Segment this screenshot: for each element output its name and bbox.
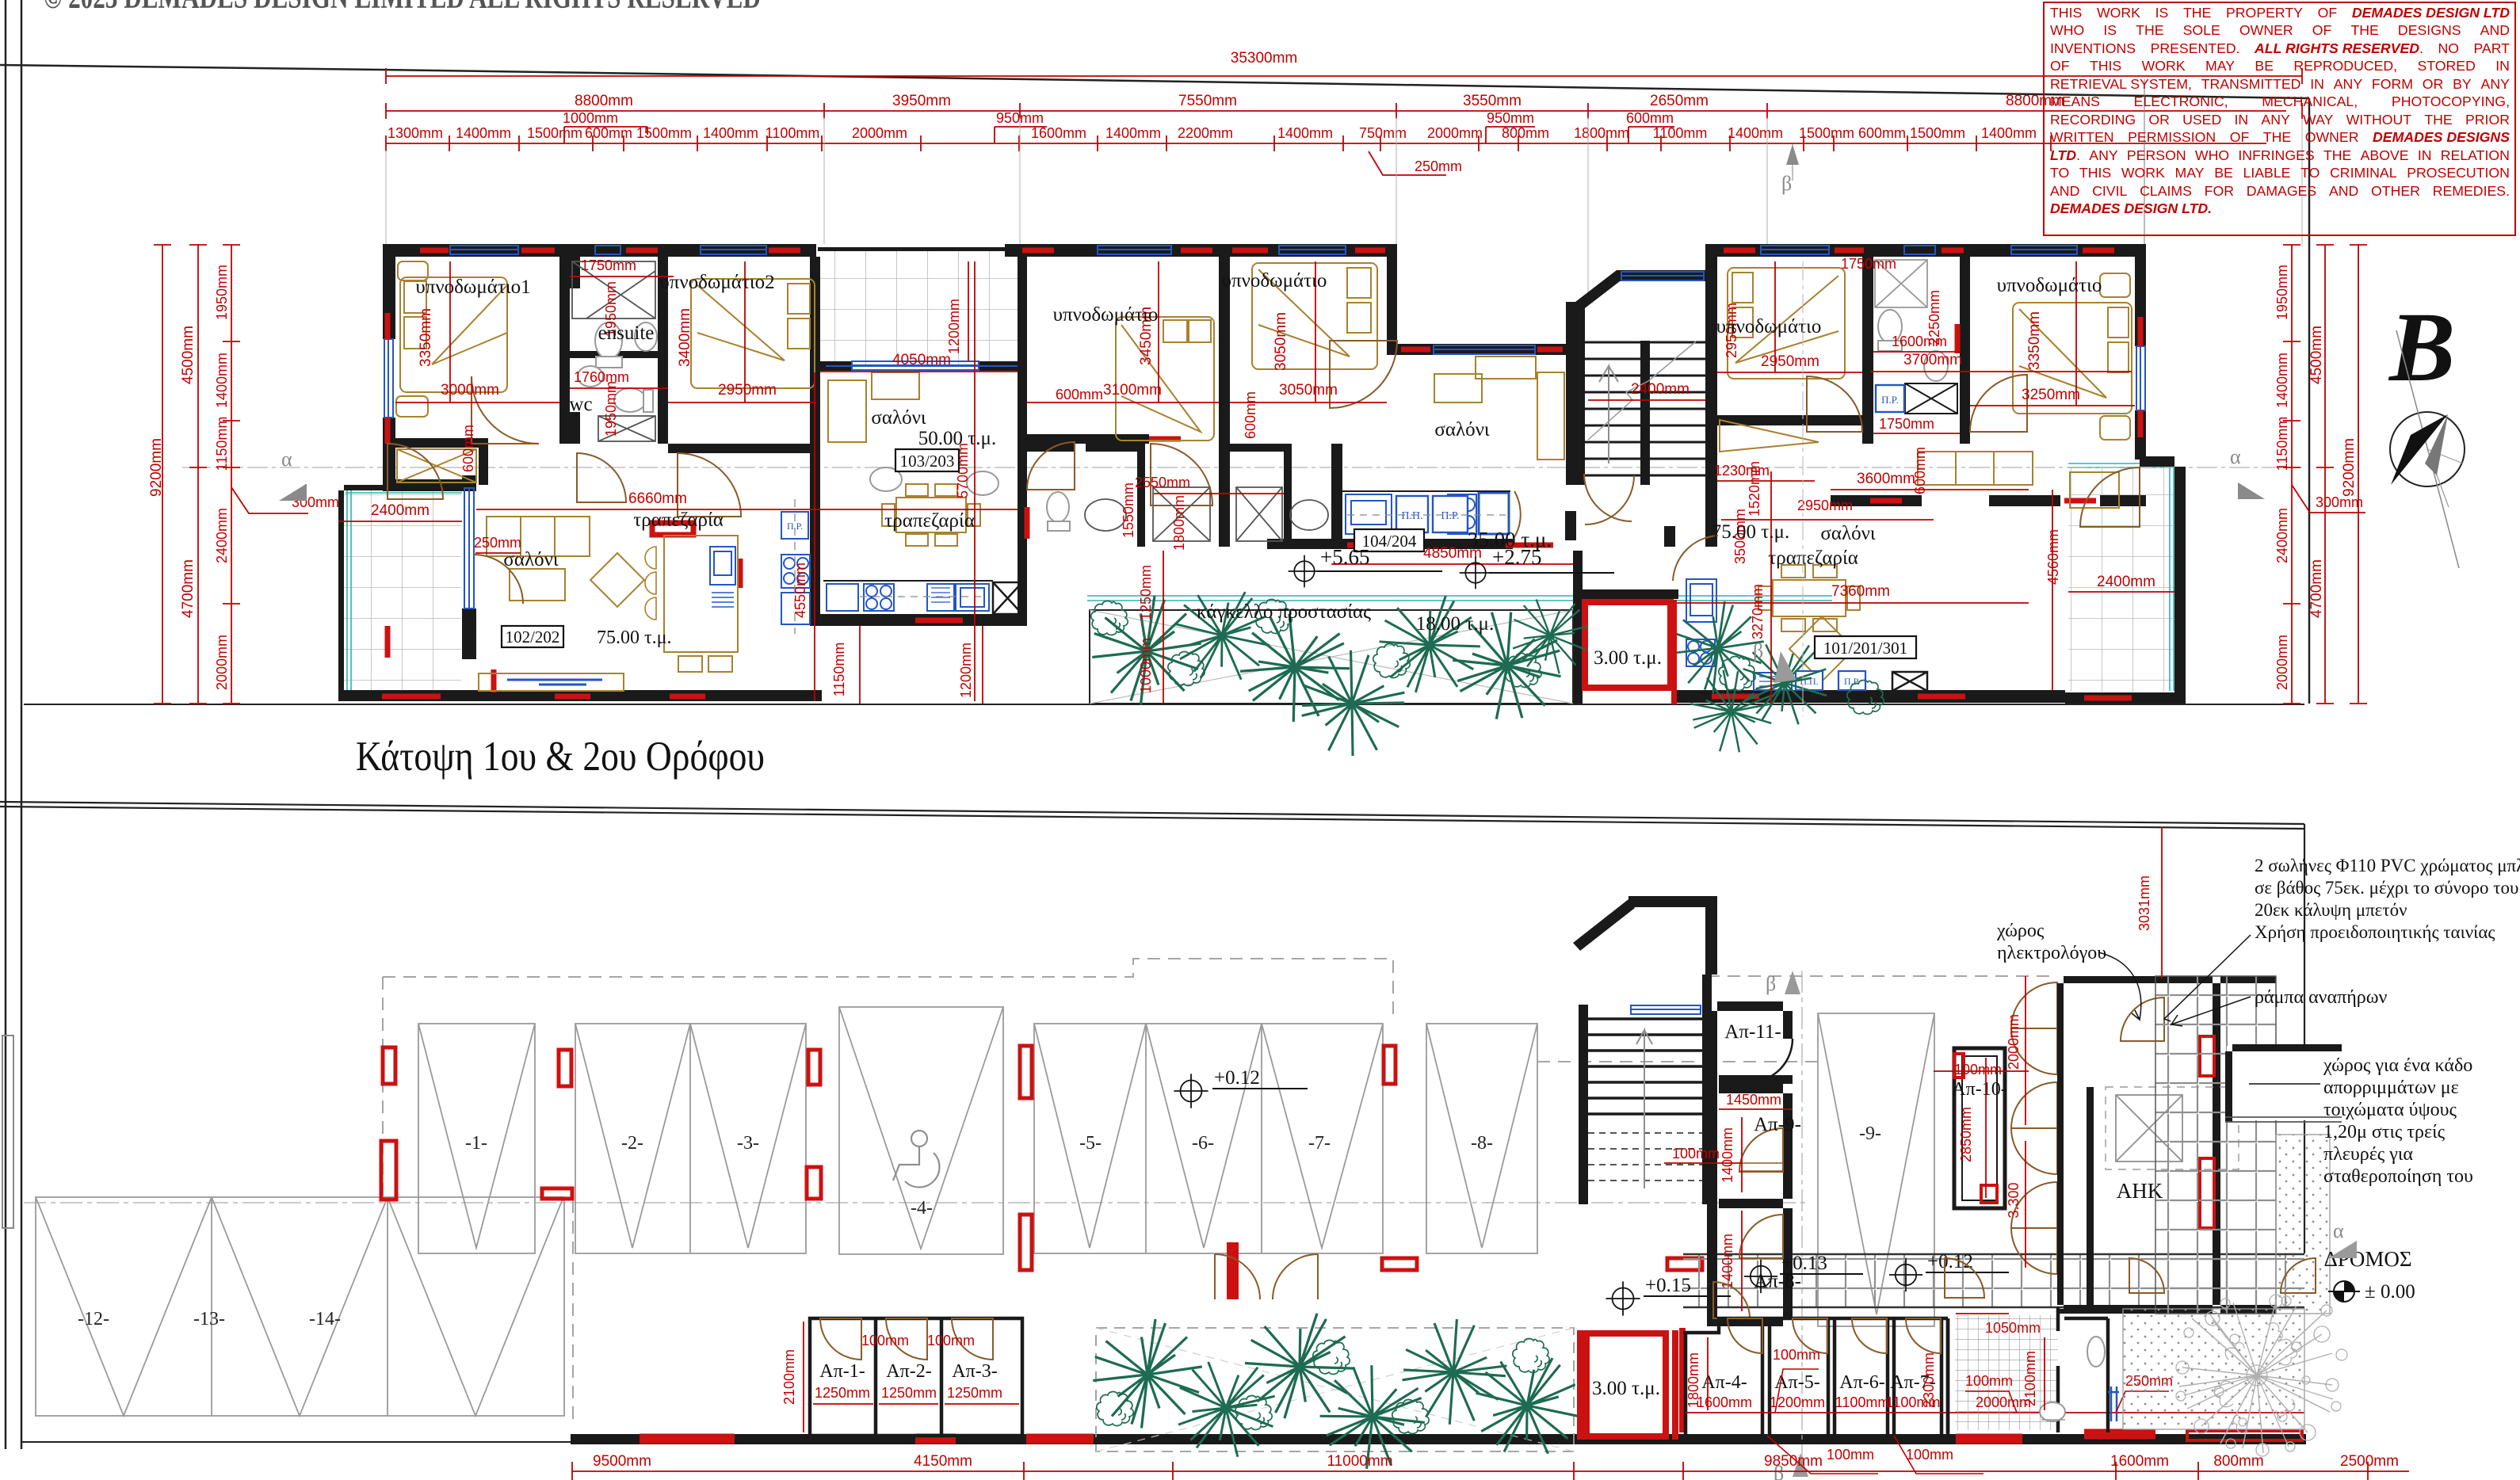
svg-text:1750mm: 1750mm bbox=[1841, 256, 1896, 272]
svg-text:600mm: 600mm bbox=[1056, 387, 1103, 402]
svg-text:100mm: 100mm bbox=[1906, 1447, 1953, 1463]
svg-text:-6-: -6- bbox=[1192, 1133, 1214, 1154]
svg-text:1200mm: 1200mm bbox=[958, 643, 974, 698]
svg-text:-1-: -1- bbox=[465, 1133, 487, 1154]
svg-text:1400mm: 1400mm bbox=[456, 125, 511, 141]
svg-text:3031mm: 3031mm bbox=[2136, 875, 2152, 931]
svg-text:100mm: 100mm bbox=[1954, 1062, 2002, 1078]
svg-text:2550mm: 2550mm bbox=[1135, 475, 1190, 490]
svg-text:3100mm: 3100mm bbox=[1103, 382, 1162, 399]
svg-text:2 σωλήνες Φ110 PVC χρώματος μπ: 2 σωλήνες Φ110 PVC χρώματος μπλέ bbox=[2255, 856, 2520, 875]
svg-text:1100mm: 1100mm bbox=[1835, 1394, 1890, 1410]
svg-text:2100mm: 2100mm bbox=[2022, 1351, 2038, 1406]
svg-text:600mm: 600mm bbox=[1243, 391, 1258, 439]
svg-text:1500mm: 1500mm bbox=[527, 125, 582, 141]
svg-text:ensuite: ensuite bbox=[598, 322, 655, 344]
svg-text:+0.12: +0.12 bbox=[1927, 1251, 1973, 1272]
svg-text:Απ-11-: Απ-11- bbox=[1724, 1021, 1781, 1043]
svg-text:1500mm: 1500mm bbox=[1910, 125, 1965, 141]
svg-text:Π.Π.: Π.Π. bbox=[1401, 510, 1422, 522]
svg-text:1100mm: 1100mm bbox=[766, 125, 820, 141]
svg-text:απορριμμάτων με: απορριμμάτων με bbox=[2323, 1078, 2459, 1098]
svg-text:υπνοδωμάτιο: υπνοδωμάτιο bbox=[1997, 275, 2102, 296]
svg-text:1400mm: 1400mm bbox=[2274, 353, 2290, 408]
svg-text:+0.12: +0.12 bbox=[1214, 1067, 1260, 1089]
svg-text:-2-: -2- bbox=[621, 1133, 643, 1154]
svg-text:Απ-9-: Απ-9- bbox=[1754, 1114, 1801, 1135]
svg-text:3350mm: 3350mm bbox=[418, 308, 434, 367]
svg-text:-4-: -4- bbox=[911, 1198, 933, 1219]
svg-text:α: α bbox=[2230, 445, 2241, 468]
svg-text:1400mm: 1400mm bbox=[1981, 125, 2037, 141]
svg-text:1950mm: 1950mm bbox=[603, 381, 619, 437]
svg-text:100mm: 100mm bbox=[1827, 1447, 1874, 1463]
svg-text:τραπεζαρία: τραπεζαρία bbox=[633, 509, 724, 531]
svg-text:1950mm: 1950mm bbox=[214, 265, 230, 320]
svg-text:1400mm: 1400mm bbox=[1720, 1234, 1735, 1289]
svg-text:1400mm: 1400mm bbox=[1720, 1127, 1735, 1183]
svg-text:9200mm: 9200mm bbox=[2341, 438, 2358, 497]
svg-text:Απ-3-: Απ-3- bbox=[952, 1361, 997, 1382]
svg-text:-14-: -14- bbox=[309, 1309, 341, 1329]
svg-text:2400mm: 2400mm bbox=[2274, 508, 2290, 563]
svg-text:Απ-6-: Απ-6- bbox=[1839, 1372, 1884, 1393]
svg-text:6660mm: 6660mm bbox=[628, 490, 687, 507]
svg-text:ηλεκτρολόγου: ηλεκτρολόγου bbox=[1997, 943, 2106, 963]
svg-text:+0.13: +0.13 bbox=[1781, 1253, 1827, 1274]
svg-text:-8-: -8- bbox=[1471, 1133, 1493, 1154]
svg-text:3600mm: 3600mm bbox=[1857, 471, 1915, 487]
svg-text:-3-: -3- bbox=[737, 1133, 759, 1154]
svg-text:2000mm: 2000mm bbox=[1427, 125, 1483, 141]
svg-text:103/203: 103/203 bbox=[900, 452, 955, 471]
svg-text:75.00 τ.μ.: 75.00 τ.μ. bbox=[597, 627, 672, 648]
svg-text:ράμπα αναπήρων: ράμπα αναπήρων bbox=[2255, 987, 2388, 1008]
svg-text:3000mm: 3000mm bbox=[441, 382, 499, 399]
svg-text:600mm: 600mm bbox=[460, 425, 476, 472]
svg-text:3050mm: 3050mm bbox=[1273, 312, 1289, 371]
svg-text:950mm: 950mm bbox=[1487, 110, 1534, 126]
svg-text:800mm: 800mm bbox=[1502, 125, 1549, 141]
svg-text:α: α bbox=[281, 448, 292, 471]
svg-text:3250mm: 3250mm bbox=[2022, 387, 2080, 403]
svg-text:100mm: 100mm bbox=[861, 1333, 909, 1348]
svg-text:2250mm: 2250mm bbox=[1926, 290, 1942, 345]
svg-text:wc: wc bbox=[569, 394, 592, 415]
svg-text:1400mm: 1400mm bbox=[1728, 125, 1783, 141]
svg-text:σαλόνι: σαλόνι bbox=[1434, 419, 1490, 441]
svg-text:1750mm: 1750mm bbox=[581, 257, 636, 273]
svg-text:100mm: 100mm bbox=[1672, 1146, 1720, 1161]
svg-text:1800mm: 1800mm bbox=[1171, 495, 1187, 551]
svg-text:9500mm: 9500mm bbox=[593, 1453, 651, 1470]
svg-text:σαλόνι: σαλόνι bbox=[503, 549, 559, 570]
svg-text:250mm: 250mm bbox=[474, 535, 521, 551]
svg-text:1250mm: 1250mm bbox=[1138, 565, 1154, 620]
svg-text:1600mm: 1600mm bbox=[1031, 125, 1086, 141]
svg-text:600mm: 600mm bbox=[1912, 447, 1928, 494]
svg-text:2000mm: 2000mm bbox=[852, 125, 907, 141]
svg-text:101/201/301: 101/201/301 bbox=[1823, 639, 1907, 658]
svg-text:1450mm: 1450mm bbox=[1726, 1092, 1781, 1108]
svg-text:600mm: 600mm bbox=[585, 125, 632, 141]
svg-text:2400mm: 2400mm bbox=[371, 502, 430, 519]
svg-text:-7-: -7- bbox=[1308, 1133, 1331, 1154]
svg-text:Π.Ρ.: Π.Ρ. bbox=[1881, 394, 1899, 406]
svg-text:+0.15: +0.15 bbox=[1645, 1275, 1691, 1296]
svg-text:τραπεζαρία: τραπεζαρία bbox=[884, 510, 975, 532]
svg-text:750mm: 750mm bbox=[1359, 125, 1407, 141]
svg-text:-13-: -13- bbox=[193, 1309, 225, 1329]
svg-text:1400mm: 1400mm bbox=[214, 353, 230, 408]
svg-text:2000mm: 2000mm bbox=[2274, 635, 2290, 690]
svg-text:9850mm: 9850mm bbox=[1764, 1453, 1823, 1470]
svg-text:2850mm: 2850mm bbox=[1958, 1107, 1974, 1162]
svg-text:3.00 τ.μ.: 3.00 τ.μ. bbox=[1592, 1378, 1660, 1399]
svg-text:600mm: 600mm bbox=[1626, 110, 1674, 126]
svg-text:2950mm: 2950mm bbox=[1761, 353, 1819, 370]
svg-text:3700mm: 3700mm bbox=[1903, 352, 1962, 368]
svg-text:± 0.00: ± 0.00 bbox=[2365, 1281, 2415, 1303]
svg-text:1000mm: 1000mm bbox=[563, 110, 618, 126]
svg-text:4050mm: 4050mm bbox=[892, 352, 951, 368]
svg-text:1500mm: 1500mm bbox=[1799, 125, 1854, 141]
svg-text:1600mm: 1600mm bbox=[1697, 1394, 1752, 1410]
svg-text:α: α bbox=[2333, 1219, 2344, 1242]
svg-text:Απ-1-: Απ-1- bbox=[819, 1361, 865, 1382]
svg-text:75.00 τ.μ.: 75.00 τ.μ. bbox=[1712, 521, 1789, 543]
svg-text:1400mm: 1400mm bbox=[1277, 125, 1333, 141]
svg-text:1150mm: 1150mm bbox=[2274, 417, 2290, 471]
svg-text:1800mm: 1800mm bbox=[1574, 125, 1629, 141]
svg-text:1550mm: 1550mm bbox=[1121, 483, 1136, 538]
svg-text:© 2023 DEMADES DESIGN LIMITED: © 2023 DEMADES DESIGN LIMITED ALL RIGHTS… bbox=[44, 0, 761, 16]
svg-text:πλευρές για: πλευρές για bbox=[2323, 1144, 2413, 1165]
svg-text:Απ-2-: Απ-2- bbox=[886, 1361, 931, 1382]
svg-text:100mm: 100mm bbox=[1773, 1347, 1820, 1363]
svg-text:102/202: 102/202 bbox=[506, 627, 560, 647]
svg-text:20εκ κάλυψη μπετόν: 20εκ κάλυψη μπετόν bbox=[2255, 900, 2407, 920]
svg-text:Απ-10-: Απ-10- bbox=[1952, 1079, 2006, 1100]
svg-text:3270mm: 3270mm bbox=[1750, 584, 1766, 639]
svg-text:Χρήση προειδοποιητικής ταινίας: Χρήση προειδοποιητικής ταινίας bbox=[2255, 922, 2495, 942]
svg-text:τραπεζαρία: τραπεζαρία bbox=[1768, 547, 1858, 569]
svg-text:2400mm: 2400mm bbox=[2097, 574, 2155, 590]
svg-text:σε βάθος 75εκ. μέχρι το σύνορο: σε βάθος 75εκ. μέχρι το σύνορο του τεμαχ… bbox=[2255, 878, 2520, 898]
svg-text:3350mm: 3350mm bbox=[2026, 311, 2043, 370]
svg-text:1100mm: 1100mm bbox=[1653, 125, 1708, 141]
svg-text:1400mm: 1400mm bbox=[1105, 125, 1161, 141]
svg-text:4560mm: 4560mm bbox=[2045, 529, 2061, 585]
svg-text:3.300: 3.300 bbox=[2006, 1182, 2022, 1218]
svg-text:χώρος: χώρος bbox=[1996, 921, 2045, 941]
svg-text:1500mm: 1500mm bbox=[636, 125, 692, 141]
svg-text:100mm: 100mm bbox=[1965, 1373, 2013, 1389]
svg-text:1760mm: 1760mm bbox=[574, 369, 629, 385]
svg-text:35300mm: 35300mm bbox=[1231, 50, 1298, 67]
svg-text:Π.Ρ.: Π.Ρ. bbox=[1441, 510, 1459, 522]
svg-text:1250mm: 1250mm bbox=[815, 1385, 870, 1401]
svg-text:2400mm: 2400mm bbox=[214, 508, 230, 563]
svg-text:-5-: -5- bbox=[1079, 1133, 1102, 1154]
svg-text:104/204: 104/204 bbox=[1362, 532, 1417, 551]
svg-text:β: β bbox=[1753, 639, 1763, 662]
svg-text:1150mm: 1150mm bbox=[831, 643, 847, 697]
svg-text:1,20μ στις τρείς: 1,20μ στις τρείς bbox=[2323, 1122, 2446, 1142]
svg-text:18.00 τ.μ.: 18.00 τ.μ. bbox=[1416, 613, 1494, 635]
svg-text:+2.75: +2.75 bbox=[1492, 545, 1541, 569]
svg-text:υπνοδωμάτιο: υπνοδωμάτιο bbox=[1222, 270, 1327, 292]
svg-text:-12-: -12- bbox=[78, 1309, 109, 1329]
svg-text:β: β bbox=[1766, 972, 1776, 995]
svg-text:+5.65: +5.65 bbox=[1320, 545, 1369, 569]
svg-text:2400mm: 2400mm bbox=[1631, 381, 1690, 398]
svg-text:2000mm: 2000mm bbox=[2006, 1014, 2022, 1070]
svg-text:1950mm: 1950mm bbox=[2274, 265, 2290, 320]
svg-text:B: B bbox=[2388, 293, 2455, 402]
svg-text:κάγκελλο προστασίας: κάγκελλο προστασίας bbox=[1197, 601, 1371, 623]
svg-text:100mm: 100mm bbox=[927, 1333, 975, 1348]
svg-text:β: β bbox=[1781, 172, 1792, 195]
svg-text:4700mm: 4700mm bbox=[180, 559, 197, 618]
svg-text:1600mm: 1600mm bbox=[2110, 1453, 2169, 1470]
svg-text:σαλόνι: σαλόνι bbox=[871, 407, 926, 429]
svg-text:1250mm: 1250mm bbox=[947, 1385, 1002, 1401]
svg-text:1200mm: 1200mm bbox=[946, 299, 962, 354]
svg-text:χώρος για ένα κάδο: χώρος για ένα κάδο bbox=[2323, 1055, 2472, 1076]
svg-text:1400mm: 1400mm bbox=[703, 125, 758, 141]
svg-text:9200mm: 9200mm bbox=[148, 438, 165, 497]
svg-text:υπνοδωμάτιο: υπνοδωμάτιο bbox=[1053, 304, 1159, 326]
svg-text:3050mm: 3050mm bbox=[1279, 382, 1338, 399]
svg-text:2950mm: 2950mm bbox=[718, 382, 777, 399]
svg-text:1750mm: 1750mm bbox=[1879, 416, 1934, 432]
svg-text:2300mm: 2300mm bbox=[1921, 1352, 1937, 1408]
svg-text:τοιχώματα ύψους: τοιχώματα ύψους bbox=[2323, 1100, 2457, 1120]
svg-text:2100mm: 2100mm bbox=[781, 1349, 797, 1405]
svg-text:300mm: 300mm bbox=[2316, 494, 2363, 510]
svg-text:1000mm: 1000mm bbox=[1138, 638, 1154, 693]
svg-text:11000mm: 11000mm bbox=[1327, 1453, 1392, 1470]
svg-text:-9-: -9- bbox=[1859, 1123, 1881, 1144]
svg-text:2500mm: 2500mm bbox=[2340, 1453, 2399, 1470]
svg-text:υπνοδωμάτιο2: υπνοδωμάτιο2 bbox=[659, 272, 774, 293]
svg-text:50.00 τ.μ.: 50.00 τ.μ. bbox=[918, 428, 996, 449]
svg-text:σαλόνι: σαλόνι bbox=[1820, 523, 1876, 544]
svg-text:1520mm: 1520mm bbox=[1747, 461, 1762, 517]
svg-text:800mm: 800mm bbox=[2213, 1453, 2263, 1470]
svg-text:υπνοδωμάτιο: υπνοδωμάτιο bbox=[1716, 316, 1822, 338]
svg-text:7550mm: 7550mm bbox=[1178, 93, 1237, 109]
svg-text:4700mm: 4700mm bbox=[2308, 559, 2325, 618]
svg-text:3550mm: 3550mm bbox=[1463, 93, 1522, 109]
svg-text:2200mm: 2200mm bbox=[1178, 125, 1233, 141]
svg-text:1150mm: 1150mm bbox=[214, 417, 230, 471]
svg-text:600mm: 600mm bbox=[1858, 125, 1906, 141]
svg-text:4550mm: 4550mm bbox=[792, 563, 808, 618]
svg-text:2000mm: 2000mm bbox=[214, 635, 230, 690]
svg-text:1250mm: 1250mm bbox=[881, 1385, 937, 1401]
svg-text:3400mm: 3400mm bbox=[677, 308, 693, 367]
svg-text:7360mm: 7360mm bbox=[1831, 583, 1890, 600]
svg-text:ΔΡΟΜΟΣ: ΔΡΟΜΟΣ bbox=[2323, 1247, 2411, 1271]
svg-text:υπνοδωμάτιο1: υπνοδωμάτιο1 bbox=[415, 277, 530, 298]
svg-text:1300mm: 1300mm bbox=[388, 125, 443, 141]
svg-text:4500mm: 4500mm bbox=[2308, 326, 2325, 384]
svg-text:2650mm: 2650mm bbox=[1650, 93, 1709, 109]
svg-text:1800mm: 1800mm bbox=[1686, 1352, 1701, 1408]
svg-text:250mm: 250mm bbox=[1415, 158, 1462, 174]
svg-text:4500mm: 4500mm bbox=[180, 326, 197, 384]
svg-text:8800mm: 8800mm bbox=[575, 93, 633, 109]
svg-text:4150mm: 4150mm bbox=[914, 1453, 972, 1470]
svg-text:σταθεροποίηση του: σταθεροποίηση του bbox=[2323, 1166, 2473, 1187]
svg-text:Κάτοψη 1ου & 2ου Ορόφου: Κάτοψη 1ου & 2ου Ορόφου bbox=[356, 734, 765, 780]
svg-text:2950mm: 2950mm bbox=[1797, 498, 1853, 513]
svg-text:3.00 τ.μ.: 3.00 τ.μ. bbox=[1594, 647, 1662, 669]
svg-text:3950mm: 3950mm bbox=[892, 93, 951, 109]
